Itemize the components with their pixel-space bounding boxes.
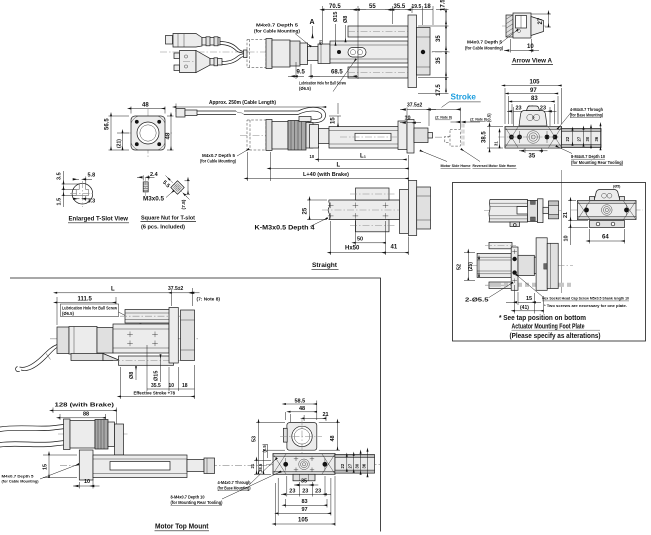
svg-text:50: 50 bbox=[357, 237, 363, 243]
svg-text:L₁: L₁ bbox=[360, 154, 367, 160]
svg-text:15: 15 bbox=[43, 464, 49, 470]
svg-text:(2: Note 8): (2: Note 8) bbox=[435, 116, 452, 120]
svg-text:23: 23 bbox=[516, 105, 522, 111]
svg-text:30: 30 bbox=[585, 136, 590, 141]
svg-text:83: 83 bbox=[531, 96, 538, 102]
svg-text:10: 10 bbox=[405, 116, 411, 122]
svg-text:4-M4x0.7 Through: 4-M4x0.7 Through bbox=[218, 480, 251, 485]
svg-text:83: 83 bbox=[302, 499, 308, 505]
svg-text:1.5: 1.5 bbox=[57, 198, 63, 206]
svg-text:17.5: 17.5 bbox=[436, 84, 442, 96]
svg-text:111.5: 111.5 bbox=[78, 297, 93, 303]
svg-text:* See tap position on bottom: * See tap position on bottom bbox=[499, 315, 586, 322]
svg-text:27: 27 bbox=[538, 17, 544, 24]
svg-text:21: 21 bbox=[323, 412, 329, 418]
svg-text:Approx. 250m (Cable Length): Approx. 250m (Cable Length) bbox=[209, 100, 276, 106]
svg-text:10: 10 bbox=[84, 479, 90, 485]
svg-text:(25): (25) bbox=[468, 262, 474, 271]
svg-text:64: 64 bbox=[602, 235, 609, 241]
svg-text:(6): (6) bbox=[318, 39, 323, 45]
svg-text:Lubrication Hole for Ball Scre: Lubrication Hole for Ball Screw bbox=[62, 305, 118, 310]
svg-text:Straight: Straight bbox=[312, 262, 338, 269]
svg-text:(21): (21) bbox=[117, 139, 123, 148]
svg-text:M4x0.7 Depth 5: M4x0.7 Depth 5 bbox=[467, 40, 502, 46]
svg-text:35: 35 bbox=[436, 57, 442, 64]
svg-text:19.5: 19.5 bbox=[412, 4, 422, 10]
svg-text:41: 41 bbox=[391, 245, 398, 251]
svg-text:35.5: 35.5 bbox=[394, 4, 406, 10]
svg-text:(41): (41) bbox=[520, 305, 529, 311]
svg-text:128 (with Brake): 128 (with Brake) bbox=[55, 403, 115, 409]
svg-text:2-Ø5.5: 2-Ø5.5 bbox=[465, 297, 489, 303]
svg-text:Arrow View A: Arrow View A bbox=[512, 58, 552, 65]
svg-text:36: 36 bbox=[594, 136, 599, 141]
svg-text:22: 22 bbox=[340, 463, 345, 468]
svg-text:Hx50: Hx50 bbox=[345, 246, 360, 252]
svg-text:Enlarged T-Slot View: Enlarged T-Slot View bbox=[69, 216, 129, 223]
svg-text:38.5: 38.5 bbox=[258, 463, 263, 472]
svg-text:27: 27 bbox=[348, 463, 353, 468]
svg-text:Ø15: Ø15 bbox=[333, 12, 339, 22]
svg-text:L+40 (with Brake): L+40 (with Brake) bbox=[303, 172, 349, 178]
svg-text:97: 97 bbox=[302, 507, 308, 513]
svg-text:10: 10 bbox=[169, 383, 175, 389]
svg-text:35: 35 bbox=[301, 478, 307, 484]
svg-text:23: 23 bbox=[289, 488, 295, 494]
svg-text:35: 35 bbox=[529, 154, 536, 160]
svg-text:(for Cable Mounting): (for Cable Mounting) bbox=[254, 29, 300, 35]
svg-text:(Ø5): (Ø5) bbox=[613, 185, 621, 189]
svg-text:(Ø6.5): (Ø6.5) bbox=[299, 86, 311, 91]
svg-text:52: 52 bbox=[457, 264, 463, 270]
svg-text:(7: Note 8): (7: Note 8) bbox=[197, 297, 221, 303]
svg-text:31: 31 bbox=[494, 141, 499, 146]
svg-text:8-M4x0.7 Depth 10: 8-M4x0.7 Depth 10 bbox=[571, 154, 606, 159]
svg-text:Effective Stroke +78: Effective Stroke +78 bbox=[134, 391, 176, 396]
svg-text:70.5: 70.5 bbox=[329, 4, 341, 10]
svg-text:23: 23 bbox=[302, 488, 308, 494]
svg-text:L: L bbox=[111, 287, 115, 293]
svg-text:M3x0.5: M3x0.5 bbox=[143, 196, 165, 203]
svg-text:37.5±2: 37.5±2 bbox=[168, 286, 183, 292]
svg-text:(2: Note 8): (2: Note 8) bbox=[470, 117, 487, 121]
svg-text:3.5: 3.5 bbox=[57, 172, 63, 180]
svg-text:21: 21 bbox=[250, 463, 255, 468]
svg-text:23: 23 bbox=[315, 488, 321, 494]
svg-text:36: 36 bbox=[362, 463, 367, 468]
svg-text:Ø8: Ø8 bbox=[129, 372, 135, 379]
svg-text:Reversed Motor Side Home: Reversed Motor Side Home bbox=[473, 163, 517, 168]
svg-text:2.4: 2.4 bbox=[150, 172, 159, 178]
svg-text:M4x0.7 Depth 5: M4x0.7 Depth 5 bbox=[256, 23, 298, 29]
svg-text:97: 97 bbox=[530, 88, 537, 94]
svg-text:(0.5): (0.5) bbox=[262, 443, 267, 452]
svg-text:105: 105 bbox=[530, 80, 541, 86]
svg-text:10: 10 bbox=[564, 235, 570, 241]
svg-text:(for Mounting Rear Tooling): (for Mounting Rear Tooling) bbox=[571, 160, 624, 165]
svg-text:(7.8): (7.8) bbox=[181, 199, 187, 209]
svg-text:48: 48 bbox=[142, 103, 149, 109]
svg-text:Actuator Mounting Foot Plate: Actuator Mounting Foot Plate bbox=[512, 324, 585, 331]
svg-text:18: 18 bbox=[182, 383, 188, 389]
svg-text:M4x0.7 Depth 5: M4x0.7 Depth 5 bbox=[2, 475, 34, 479]
svg-text:(for Cable Mounting): (for Cable Mounting) bbox=[2, 480, 40, 484]
svg-text:48: 48 bbox=[166, 132, 172, 139]
svg-text:35: 35 bbox=[436, 35, 442, 42]
svg-text:9.5: 9.5 bbox=[297, 70, 306, 76]
svg-text:8-M4x0.7 Depth 10: 8-M4x0.7 Depth 10 bbox=[171, 495, 206, 500]
svg-text:A: A bbox=[310, 19, 315, 26]
svg-text:Motor Side Home: Motor Side Home bbox=[441, 163, 472, 168]
svg-text:55: 55 bbox=[369, 4, 376, 10]
svg-text:(for Mounting Rear Tooling): (for Mounting Rear Tooling) bbox=[171, 500, 224, 505]
svg-text:25: 25 bbox=[303, 207, 309, 214]
svg-text:L: L bbox=[337, 163, 341, 169]
svg-text:105: 105 bbox=[298, 518, 309, 524]
svg-text:53: 53 bbox=[252, 436, 258, 442]
svg-text:Ø8: Ø8 bbox=[343, 16, 349, 23]
svg-text:(for Cable Mounting): (for Cable Mounting) bbox=[200, 159, 237, 164]
svg-text:68.5: 68.5 bbox=[331, 70, 343, 76]
svg-text:Lubrication Hole for Ball Scre: Lubrication Hole for Ball Screw bbox=[299, 81, 347, 86]
svg-text:27: 27 bbox=[577, 136, 582, 141]
svg-text:37.5±2: 37.5±2 bbox=[407, 103, 422, 109]
svg-text:Motor Top Mount: Motor Top Mount bbox=[155, 522, 209, 531]
svg-text:Ø15: Ø15 bbox=[154, 371, 160, 381]
svg-text:3.3: 3.3 bbox=[88, 199, 96, 205]
svg-text:Hex Socket Head Cap Screw M5x0: Hex Socket Head Cap Screw M5x0.5 Shank l… bbox=[542, 297, 629, 301]
svg-text:88: 88 bbox=[83, 412, 89, 418]
svg-text:10: 10 bbox=[310, 154, 315, 159]
svg-text:K-M3x0.5 Depth 4: K-M3x0.5 Depth 4 bbox=[255, 225, 316, 232]
svg-text:5.8: 5.8 bbox=[88, 173, 96, 179]
svg-text:48: 48 bbox=[299, 406, 305, 412]
svg-text:58.5: 58.5 bbox=[295, 398, 306, 404]
svg-text:22: 22 bbox=[565, 136, 570, 141]
svg-text:10: 10 bbox=[527, 44, 534, 50]
svg-text:15: 15 bbox=[526, 296, 532, 302]
svg-text:17.5: 17.5 bbox=[441, 0, 447, 11]
svg-text:(for Cable Mounting): (for Cable Mounting) bbox=[465, 46, 503, 52]
svg-text:M4x0.7 Depth 5: M4x0.7 Depth 5 bbox=[202, 153, 236, 158]
svg-text:(0.5): (0.5) bbox=[487, 113, 492, 122]
svg-text:56.5: 56.5 bbox=[105, 118, 111, 130]
svg-text:(Please specify as alterations: (Please specify as alterations) bbox=[510, 333, 601, 340]
svg-text:38.5: 38.5 bbox=[482, 131, 488, 143]
svg-text:Square Nut for T-slot: Square Nut for T-slot bbox=[141, 216, 195, 222]
svg-text:4-M4x0.7 Through: 4-M4x0.7 Through bbox=[570, 107, 603, 112]
svg-text:(6 pcs. Included): (6 pcs. Included) bbox=[141, 225, 185, 231]
svg-text:(for Base Mounting): (for Base Mounting) bbox=[570, 113, 604, 118]
svg-text:(Ø6.5): (Ø6.5) bbox=[62, 311, 74, 316]
svg-text:Stroke: Stroke bbox=[451, 93, 477, 102]
svg-text:18: 18 bbox=[424, 4, 431, 10]
svg-text:30: 30 bbox=[355, 463, 360, 468]
svg-text:21: 21 bbox=[563, 212, 569, 218]
svg-text:48: 48 bbox=[330, 435, 336, 441]
svg-text:15: 15 bbox=[331, 117, 337, 124]
svg-text:* Two screws are necessary for: * Two screws are necessary for one plate… bbox=[544, 304, 627, 308]
svg-text:35.5: 35.5 bbox=[151, 383, 161, 389]
